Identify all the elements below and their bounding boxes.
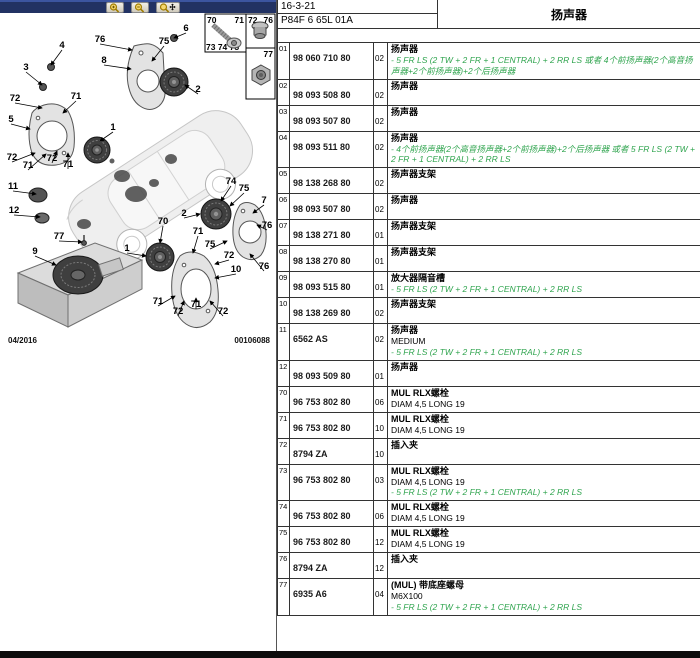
- exploded-diagram: 70 71 73 74 75 72 76 77: [0, 13, 276, 353]
- part-name: MUL RLX螺栓: [391, 528, 697, 539]
- table-row: 0898 138 270 8001扬声器支架: [278, 246, 700, 272]
- table-row: 116562 AS02扬声器MEDIUM- 5 FR LS (2 TW + 2 …: [278, 324, 700, 361]
- description-cell: 扬声器支架: [388, 168, 700, 193]
- quantity: 01: [374, 246, 388, 271]
- callout-leader-line: [51, 50, 62, 65]
- doc-code: 16-3-21: [278, 0, 437, 14]
- fitment-note: - 5 FR LS (2 TW + 2 FR + 1 CENTRAL) + 2 …: [391, 602, 697, 613]
- table-row: 7496 753 802 8006MUL RLX螺栓DIAM 4,5 LONG …: [278, 501, 700, 527]
- part-number: 6935 A6: [290, 579, 374, 615]
- bracket-8: [127, 44, 165, 110]
- row-index: 10: [278, 298, 290, 323]
- callout-leader-line: [104, 65, 131, 69]
- callout-number-1: 1: [124, 243, 130, 254]
- quantity: 04: [374, 579, 388, 615]
- quantity: 06: [374, 501, 388, 526]
- diagram-svg: 70 71 73 74 75 72 76 77: [0, 13, 276, 353]
- part-number: 98 060 710 80: [290, 43, 374, 79]
- part-number: 96 753 802 80: [290, 387, 374, 412]
- callout-number-71: 71: [193, 226, 204, 237]
- table-row: 1298 093 509 8001扬声器: [278, 361, 700, 387]
- table-row: 1098 138 269 8002扬声器支架: [278, 298, 700, 324]
- callout-number-8: 8: [101, 55, 106, 66]
- table-row: 0698 093 507 8002扬声器: [278, 194, 700, 220]
- part-number: 98 093 507 80: [290, 194, 374, 219]
- description-cell: 插入夹: [388, 553, 700, 578]
- part-number: 98 138 268 80: [290, 168, 374, 193]
- quantity: 02: [374, 106, 388, 131]
- callout-number-70: 70: [158, 216, 169, 227]
- fitment-note: - 5 FR LS (2 TW + 2 FR + 1 CENTRAL) + 2 …: [391, 284, 697, 295]
- part-number: 8794 ZA: [290, 439, 374, 464]
- callout-number-2: 2: [181, 208, 186, 219]
- callout-number-71: 71: [71, 91, 82, 102]
- legend-boxes: 70 71 73 74 75 72 76 77: [205, 14, 275, 99]
- quantity: 02: [374, 168, 388, 193]
- row-index: 05: [278, 168, 290, 193]
- part-spec: DIAM 4,5 LONG 19: [391, 539, 697, 550]
- part-name: 插入夹: [391, 554, 697, 565]
- callout-number-11: 11: [8, 181, 19, 192]
- part-number: 98 138 271 80: [290, 220, 374, 245]
- speaker-1-left: [84, 137, 110, 163]
- part-spec: MEDIUM: [391, 336, 697, 347]
- quantity: 02: [374, 324, 388, 360]
- part-number: 98 093 515 80: [290, 272, 374, 297]
- description-cell: 扬声器支架: [388, 220, 700, 245]
- part-12: [35, 213, 49, 223]
- part-spec: DIAM 4,5 LONG 19: [391, 513, 697, 524]
- bottom-bar: [0, 651, 700, 658]
- part-spec: M6X100: [391, 591, 697, 602]
- callout-number-3: 3: [23, 62, 28, 73]
- zoom-pan-button[interactable]: [156, 2, 180, 13]
- table-header: 16-3-21 P84F 6 65L 01A 扬声器: [278, 0, 700, 29]
- row-index: 74: [278, 501, 290, 526]
- table-spacer-row: [278, 29, 700, 43]
- part-number: 96 753 802 80: [290, 527, 374, 552]
- callout-number-76: 76: [259, 261, 270, 272]
- quantity: 12: [374, 553, 388, 578]
- quantity: 02: [374, 132, 388, 168]
- description-cell: 放大器隔音槽- 5 FR LS (2 TW + 2 FR + 1 CENTRAL…: [388, 272, 700, 297]
- quantity: 02: [374, 43, 388, 79]
- callout-number-9: 9: [32, 246, 37, 257]
- quantity: 01: [374, 220, 388, 245]
- table-row: 768794 ZA12插入夹: [278, 553, 700, 579]
- table-row: 0998 093 515 8001放大器隔音槽- 5 FR LS (2 TW +…: [278, 272, 700, 298]
- description-cell: 扬声器: [388, 80, 700, 105]
- description-cell: 扬声器: [388, 106, 700, 131]
- fitment-note: - 5 FR LS (2 TW + 2 FR + 1 CENTRAL) + 2 …: [391, 487, 697, 498]
- part-spec: DIAM 4,5 LONG 19: [391, 477, 697, 488]
- quantity: 10: [374, 439, 388, 464]
- callout-number-72: 72: [10, 93, 21, 104]
- speaker-1-bottom: [146, 243, 174, 271]
- part-name: MUL RLX螺栓: [391, 414, 697, 425]
- row-index: 75: [278, 527, 290, 552]
- quantity: 02: [374, 80, 388, 105]
- callout-leader-line: [26, 72, 42, 85]
- zoom-out-icon: [134, 3, 146, 13]
- page-code: P84F 6 65L 01A: [278, 14, 437, 28]
- fitment-note: - 5 FR LS (2 TW + 2 FR + 1 CENTRAL) + 2 …: [391, 55, 697, 76]
- part-name: 扬声器支架: [391, 247, 697, 258]
- fitment-note: - 5 FR LS (2 TW + 2 FR + 1 CENTRAL) + 2 …: [391, 347, 697, 358]
- callout-number-7: 7: [261, 195, 266, 206]
- row-index: 12: [278, 361, 290, 386]
- table-body: 0198 060 710 8002扬声器- 5 FR LS (2 TW + 2 …: [278, 43, 700, 616]
- row-index: 01: [278, 43, 290, 79]
- part-name: MUL RLX螺栓: [391, 388, 697, 399]
- row-index: 11: [278, 324, 290, 360]
- callout-number-72: 72: [218, 306, 229, 317]
- callout-number-76: 76: [262, 220, 273, 231]
- nut-3: [40, 84, 47, 91]
- table-row: 776935 A604(MUL) 带底座螺母M6X100- 5 FR LS (2…: [278, 579, 700, 616]
- part-spec: DIAM 4,5 LONG 19: [391, 399, 697, 410]
- callout-number-10: 10: [231, 264, 242, 275]
- legend-label: 70: [207, 15, 217, 25]
- row-index: 06: [278, 194, 290, 219]
- zoom-out-button[interactable]: [131, 2, 149, 13]
- table-row: 0498 093 511 8002扬声器- 4个前扬声器(2个高音扬声器+2个前…: [278, 132, 700, 169]
- part-name: 扬声器支架: [391, 221, 697, 232]
- part-name: 扬声器: [391, 133, 697, 144]
- quantity: 10: [374, 413, 388, 438]
- zoom-in-button[interactable]: [106, 2, 124, 13]
- row-index: 72: [278, 439, 290, 464]
- fitment-note: - 4个前扬声器(2个高音扬声器+2个前扬声器)+2个后扬声器 或者 5 FR …: [391, 144, 697, 165]
- description-cell: 扬声器MEDIUM- 5 FR LS (2 TW + 2 FR + 1 CENT…: [388, 324, 700, 360]
- speaker-2-top: [160, 68, 188, 96]
- part-name: 放大器隔音槽: [391, 273, 697, 284]
- row-index: 07: [278, 220, 290, 245]
- part-number: 96 753 802 80: [290, 501, 374, 526]
- table-row: 0598 138 268 8002扬声器支架: [278, 168, 700, 194]
- table-row: 7096 753 802 8006MUL RLX螺栓DIAM 4,5 LONG …: [278, 387, 700, 413]
- diagram-date: 04/2016: [8, 336, 37, 345]
- callout-number-71: 71: [63, 159, 74, 170]
- row-index: 71: [278, 413, 290, 438]
- part-name: 扬声器: [391, 107, 697, 118]
- callout-number-6: 6: [183, 23, 188, 34]
- description-cell: (MUL) 带底座螺母M6X100- 5 FR LS (2 TW + 2 FR …: [388, 579, 700, 615]
- callout-number-71: 71: [191, 299, 202, 310]
- description-cell: 扬声器支架: [388, 246, 700, 271]
- page-title: 扬声器: [438, 0, 700, 28]
- part-number: 98 093 507 80: [290, 106, 374, 131]
- callout-number-4: 4: [59, 40, 65, 51]
- part-name: 扬声器支架: [391, 299, 697, 310]
- description-cell: 扬声器: [388, 361, 700, 386]
- part-number: 8794 ZA: [290, 553, 374, 578]
- callout-number-77: 77: [54, 231, 65, 242]
- part-number: 98 093 509 80: [290, 361, 374, 386]
- callout-leader-line: [160, 226, 163, 243]
- row-index: 70: [278, 387, 290, 412]
- callout-number-5: 5: [8, 114, 14, 125]
- row-index: 02: [278, 80, 290, 105]
- description-cell: 扬声器- 4个前扬声器(2个高音扬声器+2个前扬声器)+2个后扬声器 或者 5 …: [388, 132, 700, 168]
- quantity: 02: [374, 194, 388, 219]
- description-cell: MUL RLX螺栓DIAM 4,5 LONG 19: [388, 387, 700, 412]
- table-row: 0798 138 271 8001扬声器支架: [278, 220, 700, 246]
- part-number: 98 093 508 80: [290, 80, 374, 105]
- part-name: (MUL) 带底座螺母: [391, 580, 697, 591]
- description-cell: MUL RLX螺栓DIAM 4,5 LONG 19: [388, 527, 700, 552]
- callout-number-72: 72: [173, 306, 184, 317]
- callout-number-71: 71: [153, 296, 164, 307]
- row-index: 77: [278, 579, 290, 615]
- row-index: 73: [278, 465, 290, 501]
- description-cell: 插入夹: [388, 439, 700, 464]
- description-cell: MUL RLX螺栓DIAM 4,5 LONG 19: [388, 501, 700, 526]
- row-index: 76: [278, 553, 290, 578]
- part-number: 96 753 802 80: [290, 413, 374, 438]
- drawing-number: 00106088: [214, 336, 270, 345]
- part-name: 插入夹: [391, 440, 697, 451]
- part-spec: DIAM 4,5 LONG 19: [391, 425, 697, 436]
- quantity: 02: [374, 298, 388, 323]
- callout-number-1: 1: [110, 122, 116, 133]
- part-name: 扬声器支架: [391, 169, 697, 180]
- description-cell: 扬声器: [388, 194, 700, 219]
- speaker-2-right: [201, 199, 231, 229]
- part-number: 96 753 802 80: [290, 465, 374, 501]
- table-row: 7396 753 802 8003MUL RLX螺栓DIAM 4,5 LONG …: [278, 465, 700, 502]
- callout-leader-line: [63, 101, 76, 113]
- bracket-7: [233, 203, 266, 260]
- parts-table: 16-3-21 P84F 6 65L 01A 扬声器 0198 060 710 …: [277, 0, 700, 616]
- quantity: 01: [374, 361, 388, 386]
- part-number: 6562 AS: [290, 324, 374, 360]
- table-row: 0198 060 710 8002扬声器- 5 FR LS (2 TW + 2 …: [278, 43, 700, 80]
- tweeter-11: [29, 188, 47, 202]
- callout-number-2: 2: [195, 84, 200, 95]
- table-row: 0298 093 508 8002扬声器: [278, 80, 700, 106]
- quantity: 06: [374, 387, 388, 412]
- zoom-in-icon: [109, 3, 121, 13]
- row-index: 09: [278, 272, 290, 297]
- quantity: 01: [374, 272, 388, 297]
- callout-leader-line: [11, 124, 30, 129]
- part-name: MUL RLX螺栓: [391, 502, 697, 513]
- row-index: 04: [278, 132, 290, 168]
- callout-leader-line: [193, 236, 198, 253]
- callout-number-12: 12: [9, 205, 20, 216]
- zoom-toolbar: [0, 0, 276, 13]
- callout-leader-line: [100, 132, 113, 141]
- part-name: 扬声器: [391, 81, 697, 92]
- callout-number-71: 71: [23, 160, 34, 171]
- description-cell: MUL RLX螺栓DIAM 4,5 LONG 19- 5 FR LS (2 TW…: [388, 465, 700, 501]
- table-row: 728794 ZA10插入夹: [278, 439, 700, 465]
- callout-number-75: 75: [239, 183, 250, 194]
- part-name: 扬声器: [391, 195, 697, 206]
- row-index: 08: [278, 246, 290, 271]
- part-name: MUL RLX螺栓: [391, 466, 697, 477]
- zoom-pan-icon: [159, 3, 177, 13]
- callout-number-72: 72: [7, 152, 18, 163]
- table-row: 0398 093 507 8002扬声器: [278, 106, 700, 132]
- description-cell: 扬声器支架: [388, 298, 700, 323]
- nut-icon: [252, 65, 270, 85]
- description-cell: MUL RLX螺栓DIAM 4,5 LONG 19: [388, 413, 700, 438]
- part-name: 扬声器: [391, 325, 697, 336]
- callout-number-74: 74: [226, 176, 237, 187]
- callout-number-75: 75: [159, 36, 170, 47]
- part-name: 扬声器: [391, 362, 697, 373]
- part-number: 98 138 269 80: [290, 298, 374, 323]
- callout-number-76: 76: [95, 34, 106, 45]
- legend-label: 71: [235, 15, 245, 25]
- description-cell: 扬声器- 5 FR LS (2 TW + 2 FR + 1 CENTRAL) +…: [388, 43, 700, 79]
- part-name: 扬声器: [391, 44, 697, 55]
- callout-number-72: 72: [47, 153, 58, 164]
- callout-number-72: 72: [224, 250, 235, 261]
- part-number: 98 138 270 80: [290, 246, 374, 271]
- table-row: 7196 753 802 8010MUL RLX螺栓DIAM 4,5 LONG …: [278, 413, 700, 439]
- table-row: 7596 753 802 8012MUL RLX螺栓DIAM 4,5 LONG …: [278, 527, 700, 553]
- table-header-left: 16-3-21 P84F 6 65L 01A: [278, 0, 438, 28]
- legend-label: 77: [264, 49, 274, 59]
- quantity: 03: [374, 465, 388, 501]
- row-index: 03: [278, 106, 290, 131]
- part-number: 98 093 511 80: [290, 132, 374, 168]
- parts-catalog-page: 70 71 73 74 75 72 76 77: [0, 0, 700, 658]
- callout-number-75: 75: [205, 239, 216, 250]
- quantity: 12: [374, 527, 388, 552]
